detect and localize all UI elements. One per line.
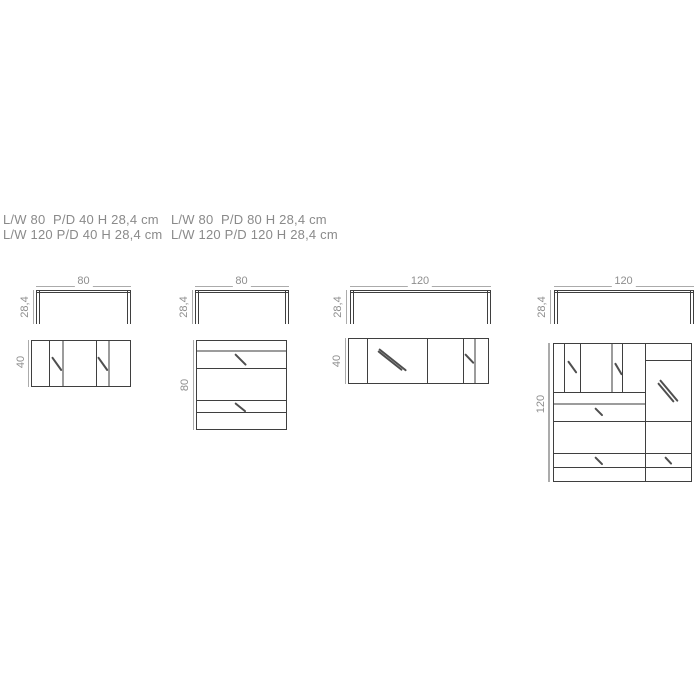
height-dimension-line [33, 290, 34, 325]
glass-edge-line [554, 403, 645, 405]
plan-divider-line [96, 341, 97, 386]
width-dimension-label: 80 [74, 275, 92, 287]
table-leg-right [690, 290, 694, 324]
plan-divider-line [554, 453, 691, 454]
glass-edge-line [197, 350, 286, 352]
depth-dimension-label: 80 [178, 335, 192, 435]
plan-divider-line [197, 412, 286, 413]
tabletop-elevation [195, 290, 289, 294]
depth-dimension-label: 120 [534, 354, 548, 454]
depth-dimension-line [193, 340, 194, 430]
glass-edge-line [611, 344, 613, 392]
spec-line-120x120: L/W 120 P/D 120 H 28,4 cm [171, 228, 338, 243]
plan-divider-line [197, 368, 286, 369]
depth-dimension-label: 40 [14, 312, 28, 412]
plan-divider-line [554, 421, 691, 422]
plan-outline [348, 338, 489, 385]
table-leg-right [127, 290, 131, 324]
table-leg-left [554, 290, 558, 324]
plan-divider-line [646, 360, 691, 361]
table-leg-left [195, 290, 199, 324]
spec-line-80x80: L/W 80 P/D 80 H 28,4 cm [171, 213, 327, 228]
spec-sheet: L/W 80 P/D 40 H 28,4 cm L/W 120 P/D 40 H… [0, 0, 700, 700]
table-leg-right [285, 290, 289, 324]
tabletop-elevation [350, 290, 492, 294]
table-leg-right [487, 290, 491, 324]
width-dimension-label: 120 [611, 275, 635, 287]
glass-edge-line [474, 339, 476, 384]
plan-divider-line [197, 400, 286, 401]
plan-divider-line [580, 344, 581, 392]
tabletop-elevation [36, 290, 131, 294]
width-dimension-label: 120 [408, 275, 432, 287]
plan-divider-line [463, 339, 464, 384]
plan-divider-line [554, 392, 645, 393]
plan-outline [31, 340, 131, 387]
plan-divider-line [427, 339, 428, 384]
plan-outline [196, 340, 287, 430]
plan-divider-line [367, 339, 368, 384]
depth-dimension-line [345, 338, 346, 385]
glass-edge-line [62, 341, 64, 386]
spec-line-80x40: L/W 80 P/D 40 H 28,4 cm [3, 213, 159, 228]
glass-edge-line [108, 341, 110, 386]
plan-divider-line [554, 467, 691, 468]
height-dimension-line [346, 290, 347, 325]
plan-main-divider-line [645, 344, 646, 482]
height-dimension-line [550, 290, 551, 325]
height-dimension-line [192, 290, 193, 325]
plan-divider-line [622, 344, 623, 392]
table-leg-left [350, 290, 354, 324]
height-dimension-label: 28,4 [535, 257, 549, 357]
plan-divider-line [564, 344, 565, 392]
depth-dimension-label: 40 [330, 311, 344, 411]
width-dimension-label: 80 [232, 275, 250, 287]
plan-divider-line [49, 341, 50, 386]
tabletop-elevation [554, 290, 695, 294]
depth-dimension-line [548, 343, 550, 483]
table-leg-left [36, 290, 40, 324]
spec-line-120x40: L/W 120 P/D 40 H 28,4 cm [3, 228, 162, 243]
